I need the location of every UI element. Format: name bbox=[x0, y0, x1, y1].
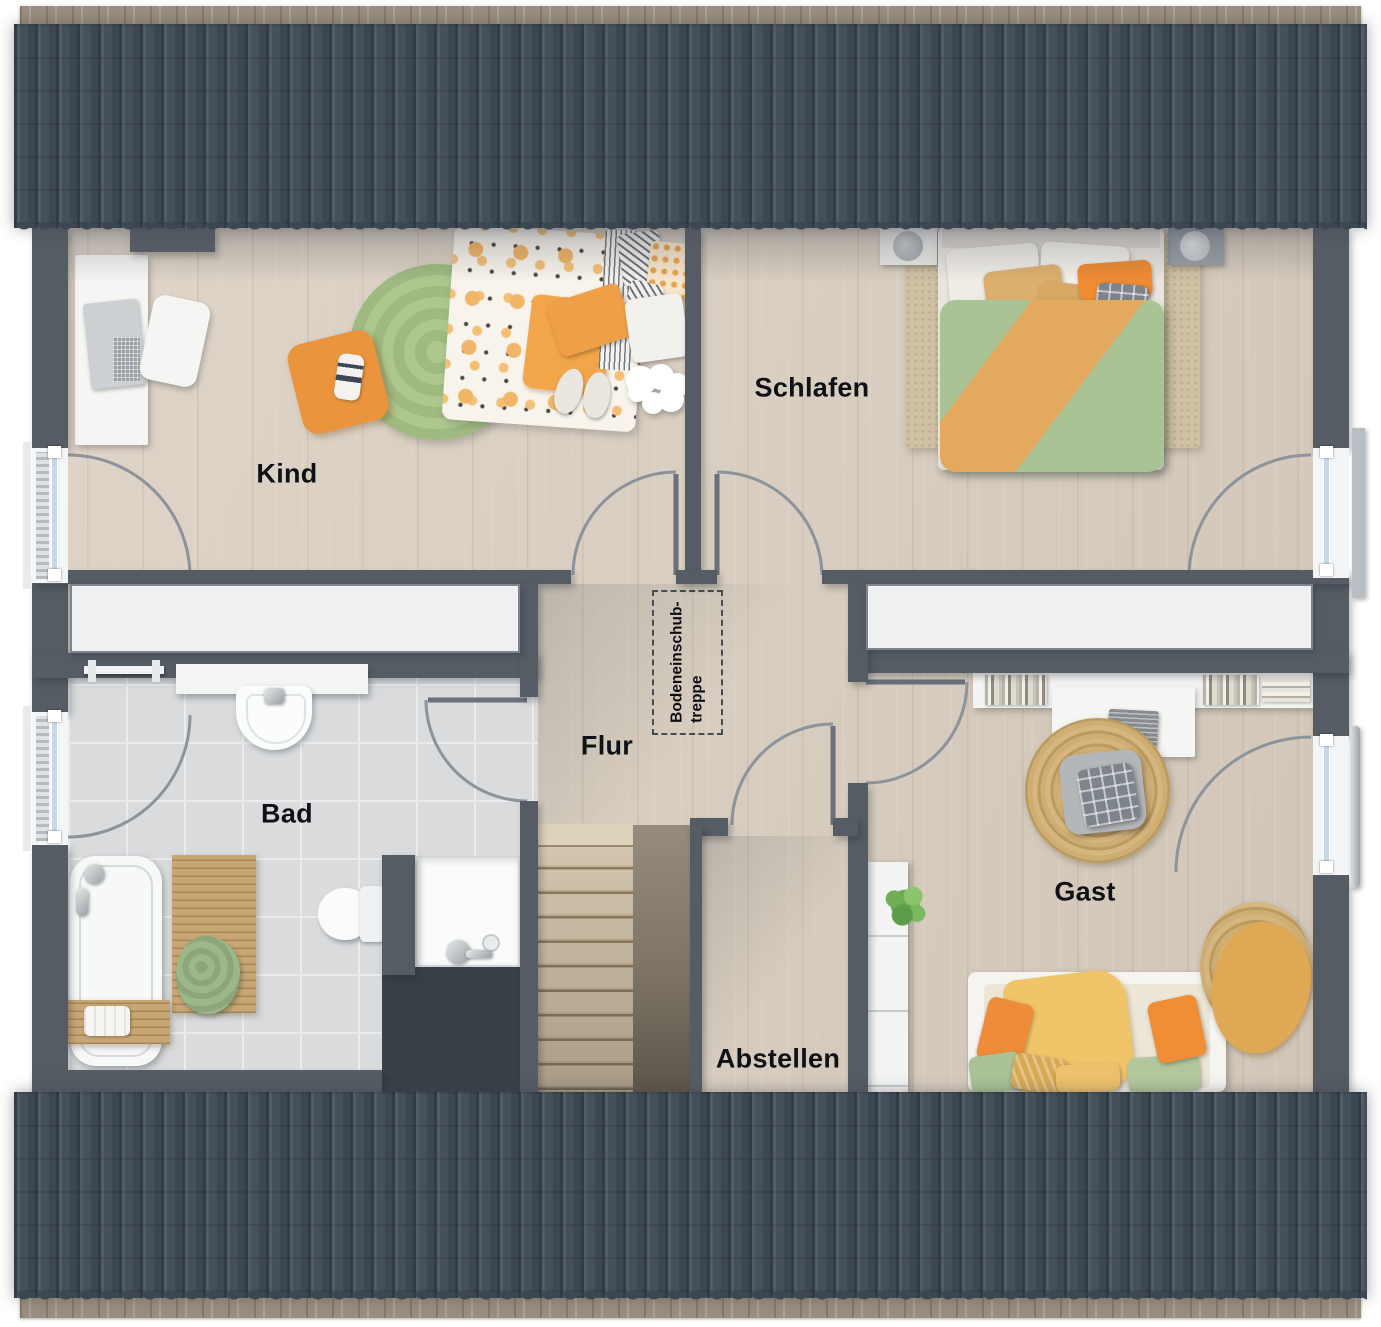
window-bad-cap-top bbox=[48, 710, 61, 722]
wall-kind-schlafen bbox=[685, 228, 701, 576]
window-kind-sill bbox=[23, 442, 31, 589]
void-under-roof bbox=[382, 967, 538, 1092]
wall-exterior-right-1 bbox=[1313, 228, 1349, 448]
books-left bbox=[985, 675, 1047, 705]
wall-bad-south bbox=[32, 1070, 382, 1092]
room-label-bad: Bad bbox=[261, 799, 313, 830]
wall-bad-east-upper bbox=[520, 584, 538, 697]
room-label-flur: Flur bbox=[581, 731, 633, 762]
keyboard bbox=[113, 337, 140, 382]
wall-abstellen-right bbox=[833, 818, 858, 836]
wall-stairwell-top bbox=[690, 825, 702, 1092]
green-duvet bbox=[940, 300, 1164, 472]
window-schlafen-cap-top bbox=[1320, 446, 1333, 458]
daybed-pillow-yellow bbox=[1055, 1062, 1120, 1093]
shower-pipe bbox=[466, 950, 492, 958]
room-label-schlafen: Schlafen bbox=[755, 373, 870, 404]
wall-gast-top bbox=[848, 650, 1349, 673]
wall-flur-gast-upper bbox=[848, 584, 868, 682]
window-gast-rail bbox=[1350, 726, 1360, 888]
potted-plant bbox=[878, 880, 932, 934]
cloud-side-table bbox=[626, 366, 656, 396]
wall-bad-east-lower bbox=[520, 801, 538, 1092]
wall-exterior-right-3 bbox=[1313, 875, 1349, 1092]
attic-hatch-outline: Bodeneinschub- treppe bbox=[652, 590, 723, 735]
books-right bbox=[1203, 675, 1259, 705]
staircase bbox=[538, 845, 633, 1092]
window-bad-cap-bottom bbox=[48, 831, 61, 843]
wall-kind-bottom bbox=[32, 570, 571, 584]
toilet-tank bbox=[360, 886, 384, 942]
window-gast-glass bbox=[1323, 740, 1330, 871]
room-label-kind: Kind bbox=[256, 459, 317, 490]
green-towel bbox=[176, 936, 240, 1014]
stair-wall-face bbox=[633, 825, 690, 1092]
attic-hatch-label: Bodeneinschub- treppe bbox=[667, 602, 707, 723]
kind-pillow-white bbox=[624, 292, 690, 363]
window-bad-glass bbox=[51, 716, 58, 841]
books-stacked bbox=[1262, 678, 1310, 702]
window-kind-cap-bottom bbox=[48, 569, 61, 581]
tub-shower-head bbox=[76, 888, 88, 916]
wall-exterior-left-3 bbox=[32, 845, 68, 1092]
wall-schlafen-bottom bbox=[822, 570, 1349, 584]
room-label-gast: Gast bbox=[1054, 877, 1115, 908]
knee-storage-left bbox=[70, 584, 520, 653]
floorplan: Bodeneinschub- treppe bbox=[0, 0, 1381, 1327]
window-kind-radiator bbox=[36, 452, 49, 579]
window-kind-glass bbox=[51, 452, 58, 579]
orange-blanket bbox=[940, 300, 1164, 472]
window-gast bbox=[1313, 736, 1349, 875]
window-kind-cap-top bbox=[48, 446, 61, 458]
attic-hatch-line2: treppe bbox=[689, 676, 706, 723]
window-schlafen bbox=[1313, 448, 1349, 578]
window-schlafen-glass bbox=[1323, 452, 1330, 574]
staircase-landing bbox=[538, 823, 633, 847]
tray-towels bbox=[84, 1006, 130, 1036]
roof-top bbox=[14, 24, 1367, 228]
window-gast-cap-bottom bbox=[1320, 861, 1333, 873]
window-schlafen-shutter bbox=[1352, 428, 1365, 598]
towel-rail-mount-left bbox=[88, 660, 96, 682]
window-schlafen-cap-bottom bbox=[1320, 564, 1333, 576]
room-label-abstellen: Abstellen bbox=[716, 1044, 840, 1075]
towel-rail-mount-right bbox=[152, 660, 160, 682]
roof-bottom bbox=[14, 1092, 1367, 1298]
window-bad-radiator bbox=[36, 716, 49, 841]
wall-exterior-left-1 bbox=[32, 228, 68, 448]
window-bad-sill bbox=[23, 706, 31, 851]
wall-shower-west bbox=[382, 855, 415, 975]
wall-door-stub bbox=[676, 570, 717, 584]
attic-hatch-line1: Bodeneinschub- bbox=[668, 602, 685, 723]
chair-cushion-plaid bbox=[1075, 762, 1140, 829]
window-gast-cap-top bbox=[1320, 734, 1333, 746]
tub-faucet bbox=[84, 864, 104, 884]
wall-exterior-left-2 bbox=[32, 583, 68, 712]
faucet bbox=[264, 688, 284, 704]
knee-storage-right bbox=[866, 584, 1313, 650]
